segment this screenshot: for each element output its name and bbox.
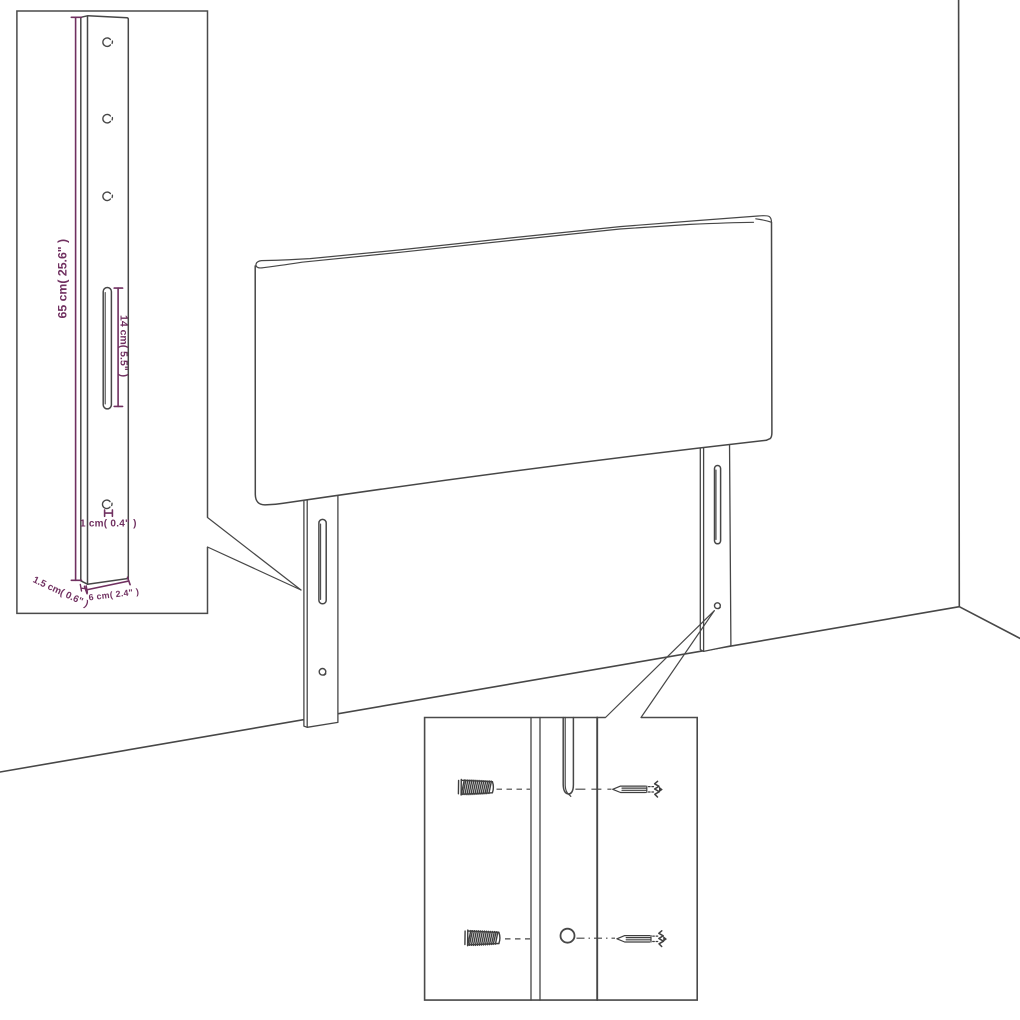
svg-text:65 cm( 25.6" ): 65 cm( 25.6" ) <box>55 239 69 319</box>
svg-text:1 cm( 0.4" ): 1 cm( 0.4" ) <box>80 518 137 529</box>
svg-text:14 cm( 5.5" ): 14 cm( 5.5" ) <box>117 315 129 377</box>
svg-text:6 cm( 2.4" ): 6 cm( 2.4" ) <box>88 586 140 602</box>
